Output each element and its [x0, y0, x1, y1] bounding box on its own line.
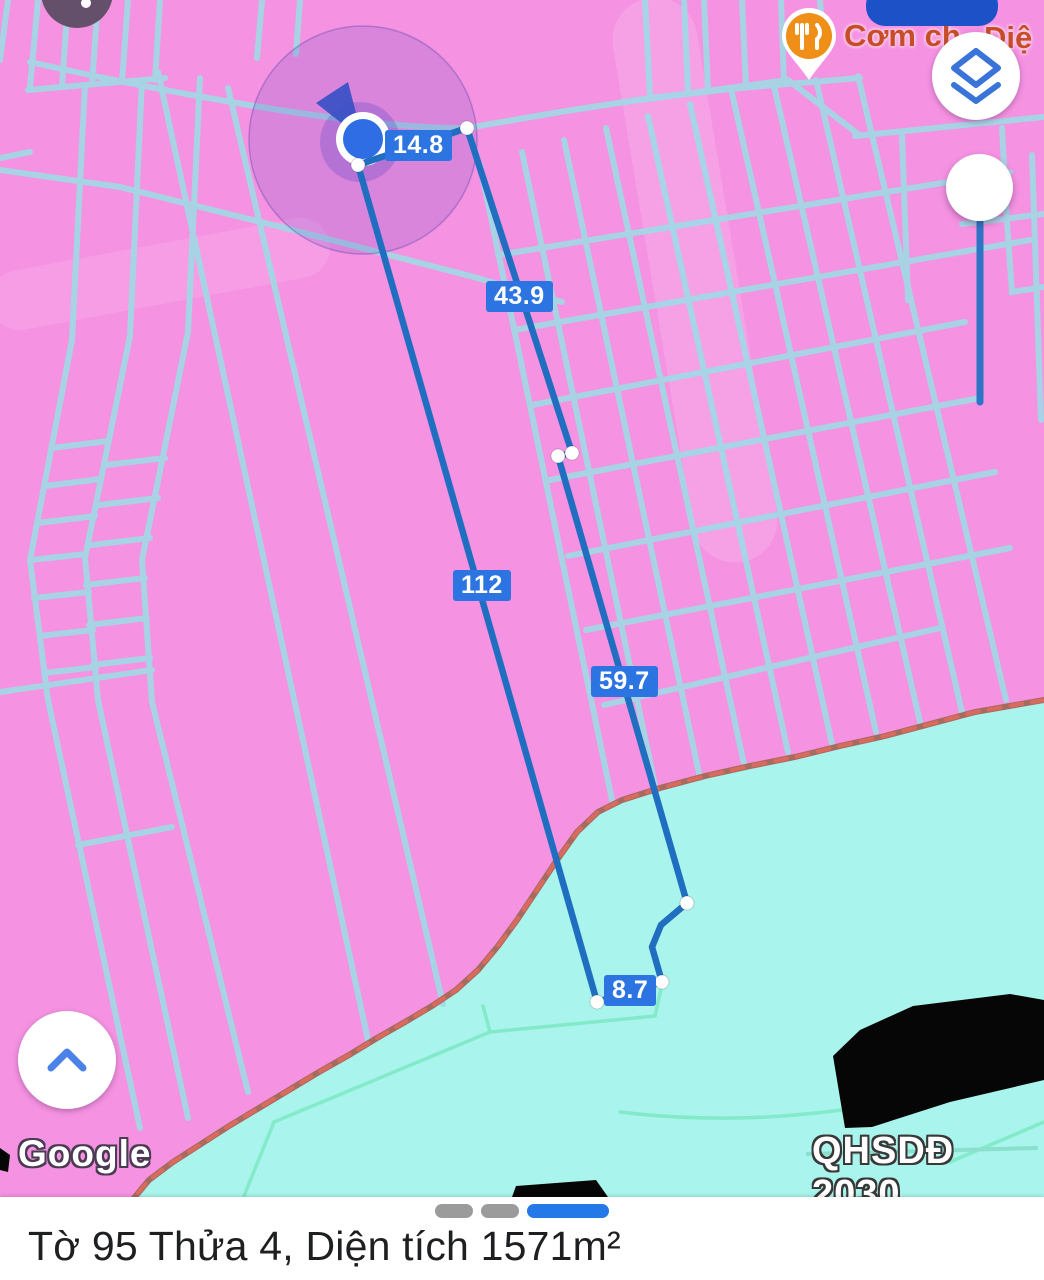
bottom-sheet[interactable]: Tờ 95 Thửa 4, Diện tích 1571m² — [0, 1197, 1044, 1280]
page-indicator — [0, 1204, 1044, 1218]
restaurant-poi-pin[interactable] — [779, 6, 839, 82]
map-canvas[interactable] — [0, 0, 1044, 1280]
parcel-info-title: Tờ 95 Thửa 4, Diện tích 1571m² — [28, 1223, 621, 1270]
page-dot-active — [527, 1204, 609, 1218]
measurement-label: 59.7 — [591, 666, 658, 697]
measurement-label: 8.7 — [604, 975, 656, 1006]
marker-head-button[interactable] — [946, 154, 1013, 221]
measurement-label: 112 — [453, 570, 511, 601]
page-dot-inactive — [435, 1204, 473, 1218]
restaurant-icon — [786, 13, 832, 59]
measurement-label: 43.9 — [486, 281, 553, 312]
maps-app-screen: 14.8 43.9 112 59.7 8.7 Cơm ch Diệ — [0, 0, 1044, 1280]
measurement-label: 14.8 — [385, 130, 452, 161]
layers-icon — [946, 43, 1006, 109]
page-dot-inactive — [481, 1204, 519, 1218]
google-watermark: Google — [18, 1133, 151, 1175]
locate-button[interactable] — [18, 1011, 116, 1109]
top-action-pill[interactable] — [866, 0, 998, 26]
layers-button[interactable] — [932, 32, 1020, 120]
chevron-up-icon — [45, 1046, 89, 1074]
